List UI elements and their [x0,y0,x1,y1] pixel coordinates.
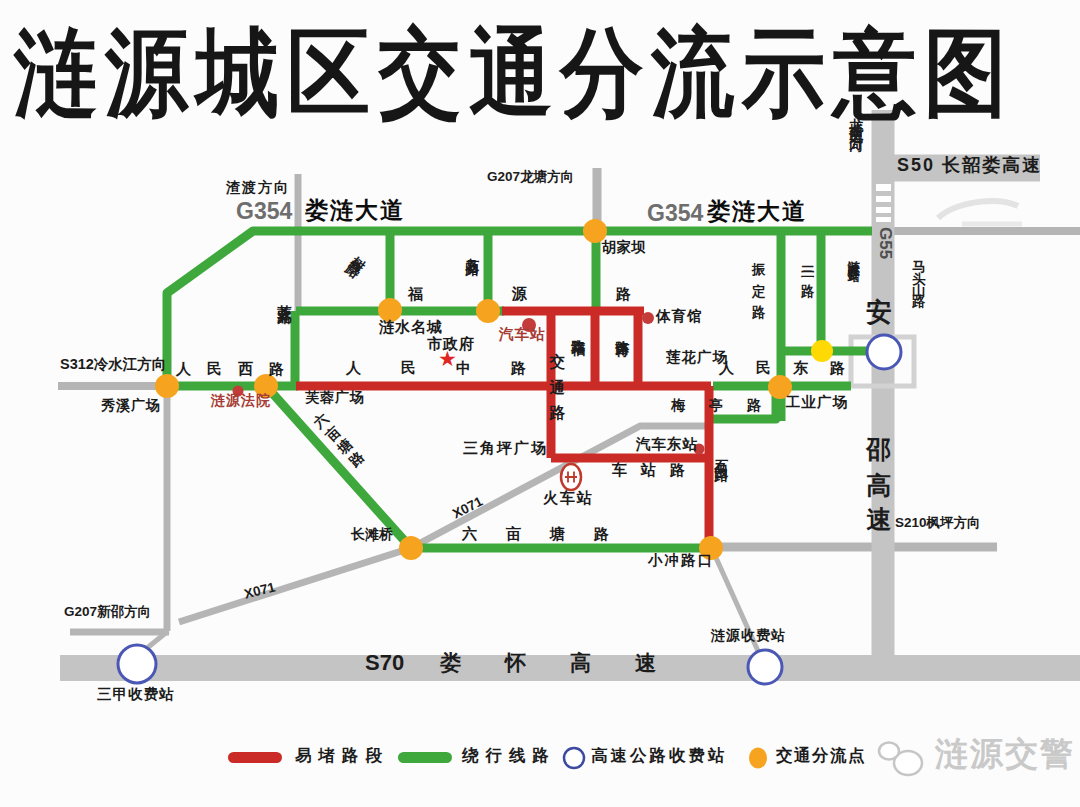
label-lianyuan-court: 涟源法院 [211,393,271,408]
toll-circle-lianyuandong [867,335,901,369]
label-renmin-zhong-road: 人民中路 [346,360,566,376]
lane-dash [876,207,891,213]
label-lianyuan-toll: 涟源收费站 [711,628,786,643]
label-daoshi-road: 岛石路 [465,247,480,253]
label-anshao-highway-an: 安 [866,299,892,326]
label-s50-highway: S50 长韶娄高速 [897,156,1042,175]
divert-dot-xiuxi [155,374,179,398]
legend-toll-label: 高速公路收费站 [591,747,728,764]
label-xiuxi-square: 秀溪广场 [101,398,161,413]
legend-congested-swatch [228,752,282,763]
label-tiyuguan: 体育馆 [656,309,703,324]
label-liumutang-road: 六亩塘路 [462,526,638,542]
watermark-swirl [938,201,1018,218]
label-lianshui-mingcheng: 涟水名城 [379,319,443,335]
poi-dot-tiyuguan [642,312,654,324]
lane-dash [876,196,891,202]
label-fuyuan-road: 福源路 [408,286,720,302]
label-shimashan-road: 石马山路 [714,448,729,460]
road-liumutang-diagonal-green [266,386,411,548]
label-anshao-highway-shaogaosu: 邵高速 [866,417,892,519]
label-lianyuandong-toll: 涟源东收费站 [847,250,860,262]
brand-watermark: 涟源交警 [935,737,1075,772]
label-g354-left: G354 [236,199,292,223]
label-furong-bei-road: 芙蓉北路 [277,294,292,300]
label-jiaotong-road: 交通路 [549,340,565,418]
label-meiting-road: 梅亭路 [671,398,785,413]
label-huochezhan: 火车站 [543,490,594,506]
label-zhending-road: 振定路 [751,252,765,315]
legend-toll-icon [564,748,584,768]
wechat-icon-small-bubble [879,743,899,760]
label-qiche-dongzhan: 汽车东站 [636,437,698,452]
label-g354-right: G354 [647,201,703,225]
label-matoushan-road: 马头山路 [911,250,925,294]
label-chezhan-road: 车站路 [612,462,699,478]
label-loulian-avenue-right: 娄涟大道 [707,199,807,223]
label-xiaochong-junction: 小冲路口 [648,553,714,568]
label-renmin-dong-road: 人民东路 [719,360,867,376]
label-g207-xinshao-direction: G207新邵方向 [64,605,151,619]
label-g55-highway: G55 [876,227,894,259]
lane-dash [876,217,891,222]
label-sanjia-toll: 三甲收费站 [97,687,175,702]
label-sanyi-road: 三一路 [800,255,814,282]
legend-congested-label: 易堵路段 [295,747,389,764]
label-gongye-square: 工业广场 [786,395,848,410]
legend-divert-label: 交通分流点 [776,747,866,764]
label-hujiaba: 胡家坝 [602,240,646,255]
toll-circle-lianyuan [748,650,782,684]
traffic-map-page: 涟源城区交通分流示意图 渣渡方向 G354 娄涟大道 G207龙塘方向 G354… [0,0,1080,807]
legend-detour-label: 绕行线路 [462,747,556,764]
legend-divert-icon [749,748,767,769]
toll-circle-sanjia [118,645,156,683]
label-sanjiaoping-square: 三角坪广场 [463,440,548,456]
label-s70-highway: S70 [365,651,404,674]
label-loulian-avenue-left: 娄涟大道 [305,198,405,222]
label-g207-longtang-direction: G207龙塘方向 [487,170,574,184]
lane-dash [876,184,891,191]
legend-detour-swatch [398,752,452,763]
label-renmin-xi-road: 人民西路 [176,361,300,377]
label-longtang-nanfeng-direction: 龙塘南风方向 [849,107,864,131]
divert-dot-daoshi [476,299,500,323]
label-louhuai-highway: 娄怀高速 [440,652,700,674]
page-title: 涟源城区交通分流示意图 [14,10,1015,140]
divert-dot-changtanqiao [399,536,423,560]
label-s210-direction: S210枫坪方向 [895,516,981,530]
label-qichezhan: 汽车站 [499,327,546,342]
label-zhadu-direction: 渣渡方向 [226,180,290,195]
label-s312-direction: S312冷水江方向 [60,357,166,372]
label-changtanqiao: 长滩桥 [351,527,393,542]
